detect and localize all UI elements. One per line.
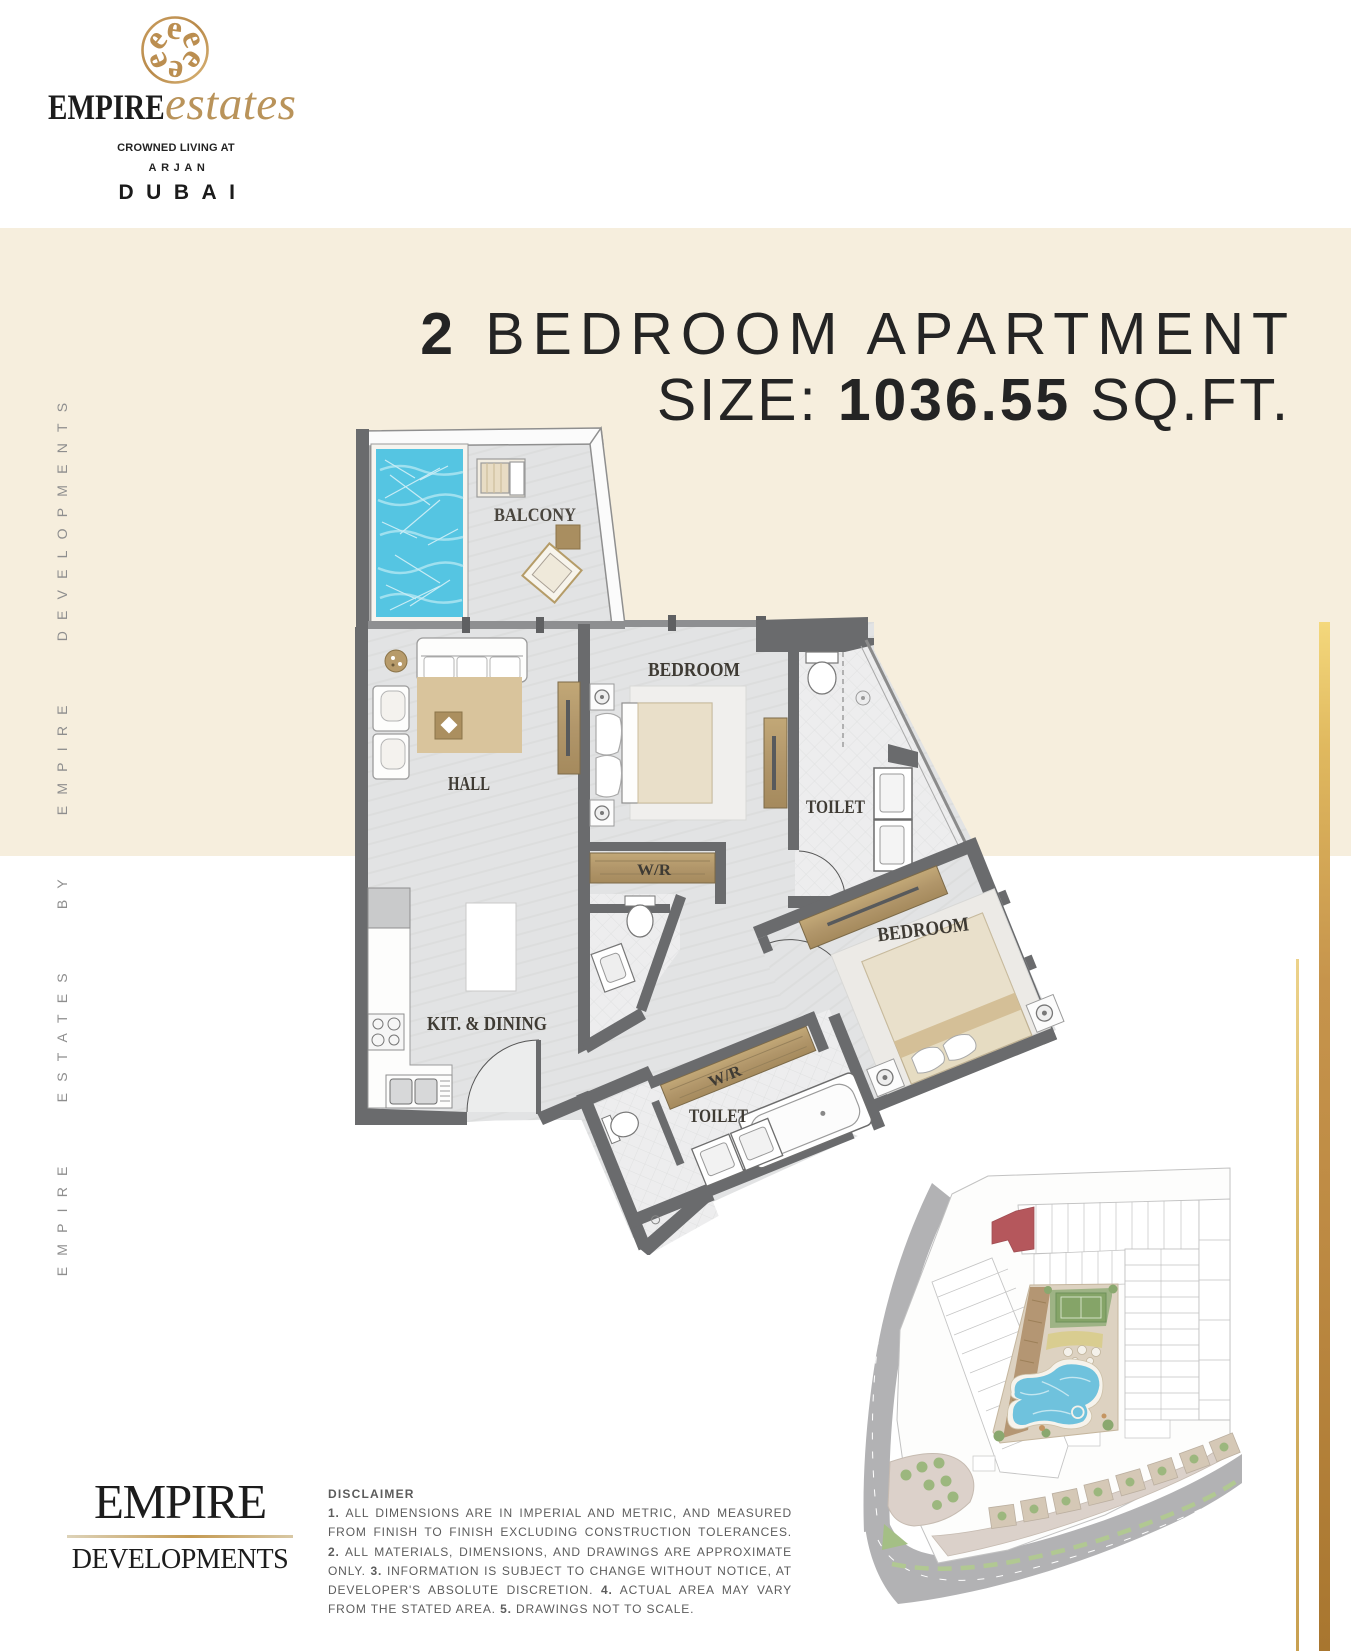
svg-text:BALCONY: BALCONY xyxy=(494,505,576,526)
svg-text:KIT. & DINING: KIT. & DINING xyxy=(427,1013,547,1035)
svg-text:BEDROOM: BEDROOM xyxy=(648,659,740,681)
svg-text:TOILET: TOILET xyxy=(806,797,865,818)
svg-text:W/R: W/R xyxy=(637,862,671,879)
svg-text:HALL: HALL xyxy=(448,773,490,795)
svg-text:TOILET: TOILET xyxy=(689,1106,748,1127)
